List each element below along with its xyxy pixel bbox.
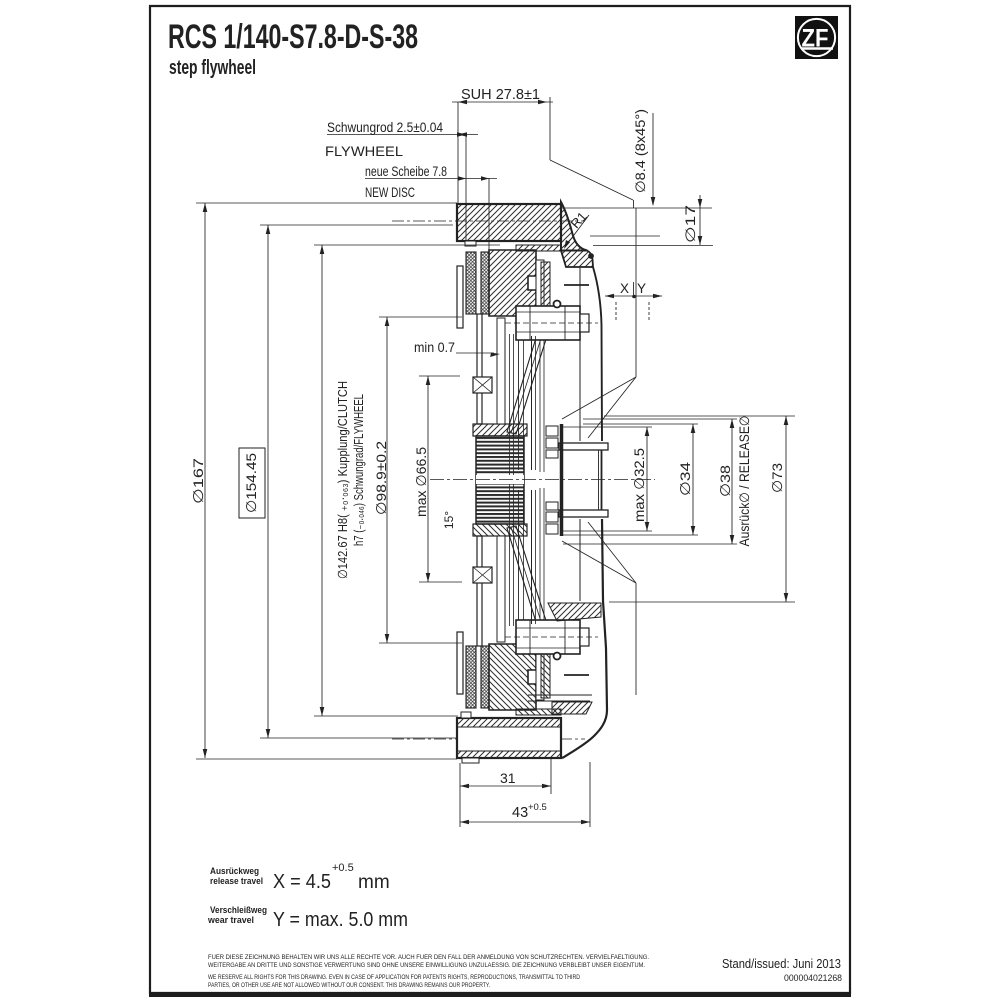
svg-text:max ∅66.5: max ∅66.5 [413,447,429,517]
svg-text:∅34: ∅34 [677,462,693,496]
svg-text:X: X [620,281,629,296]
svg-text:∅17: ∅17 [683,205,698,243]
svg-text:min 0.7: min 0.7 [414,339,455,355]
svg-text:31: 31 [500,770,516,786]
svg-text:mm: mm [358,872,390,893]
svg-text:FUER DIESE ZEICHNUNG BEHALTEN: FUER DIESE ZEICHNUNG BEHALTEN WIR UNS AL… [208,954,649,961]
svg-text:∅142.67 H8( ₊₀·₀₆₃) Kupplung/C: ∅142.67 H8( ₊₀·₀₆₃) Kupplung/CLUTCH [335,381,350,579]
svg-text:SUH 27.8±1: SUH 27.8±1 [461,87,540,103]
svg-text:∅73: ∅73 [769,463,785,493]
svg-text:RCS 1/140-S7.8-D-S-38: RCS 1/140-S7.8-D-S-38 [168,18,418,56]
svg-text:Schwungrod 2.5±0.04: Schwungrod 2.5±0.04 [327,119,443,135]
svg-text:∅8.4 (8x45°): ∅8.4 (8x45°) [633,109,648,193]
svg-text:Ausrück∅ / RELEASE∅: Ausrück∅ / RELEASE∅ [737,415,752,546]
svg-text:15°: 15° [442,511,456,529]
svg-text:X = 4.5: X = 4.5 [273,871,331,893]
svg-text:NEW DISC: NEW DISC [365,184,415,200]
svg-text:FLYWHEEL: FLYWHEEL [325,143,403,159]
svg-text:000004021268: 000004021268 [784,973,842,984]
svg-text:PARTIES, OR OTHER USE ARE NOT: PARTIES, OR OTHER USE ARE NOT ALLOWED WI… [208,982,490,989]
svg-text:neue Scheibe 7.8: neue Scheibe 7.8 [365,163,447,179]
svg-text:+0.5: +0.5 [528,802,547,813]
svg-text:WE RESERVE ALL RIGHTS FOR THIS: WE RESERVE ALL RIGHTS FOR THIS DRAWING. … [208,974,580,981]
svg-text:∅154.45: ∅154.45 [243,453,259,513]
svg-text:Y = max. 5.0 mm: Y = max. 5.0 mm [273,909,408,931]
svg-text:step flywheel: step flywheel [169,57,256,79]
svg-text:WEITERGABE AN DRITTE UND SONST: WEITERGABE AN DRITTE UND SONSTIGE VERWER… [208,962,645,969]
svg-text:release travel: release travel [210,876,263,887]
svg-text:h7 (₋₀.₀₄₆) Schwungrad/FLYWHEE: h7 (₋₀.₀₄₆) Schwungrad/FLYWHEEL [351,394,366,546]
svg-text:43: 43 [512,805,528,821]
svg-text:Y: Y [637,281,646,296]
svg-text:∅98.9±0.2: ∅98.9±0.2 [373,441,389,515]
svg-text:max ∅32.5: max ∅32.5 [631,448,647,522]
svg-text:∅38: ∅38 [717,465,733,497]
svg-text:+0.5: +0.5 [332,862,354,874]
svg-text:wear travel: wear travel [207,915,254,926]
svg-text:Stand/issued: Juni 2013: Stand/issued: Juni 2013 [722,957,841,971]
svg-text:∅167: ∅167 [190,458,206,504]
